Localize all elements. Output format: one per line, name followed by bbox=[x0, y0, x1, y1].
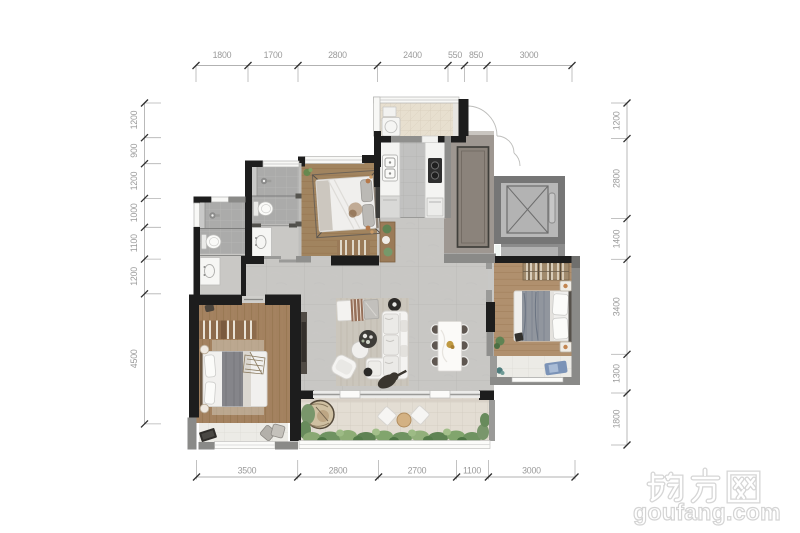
svg-text:1300: 1300 bbox=[612, 364, 622, 383]
svg-text:2800: 2800 bbox=[612, 169, 622, 188]
svg-text:1800: 1800 bbox=[213, 50, 232, 60]
svg-text:1200: 1200 bbox=[612, 111, 622, 130]
svg-text:900: 900 bbox=[129, 143, 139, 157]
svg-text:1200: 1200 bbox=[129, 171, 139, 190]
svg-text:2800: 2800 bbox=[328, 50, 347, 60]
svg-text:850: 850 bbox=[469, 50, 483, 60]
svg-text:1000: 1000 bbox=[129, 203, 139, 222]
svg-text:4500: 4500 bbox=[129, 349, 139, 368]
svg-text:3500: 3500 bbox=[238, 466, 257, 476]
svg-text:2400: 2400 bbox=[403, 50, 422, 60]
svg-text:1800: 1800 bbox=[612, 409, 622, 428]
svg-text:goufang.com: goufang.com bbox=[633, 499, 781, 525]
svg-text:3000: 3000 bbox=[522, 466, 541, 476]
svg-text:1100: 1100 bbox=[463, 466, 481, 476]
svg-text:3400: 3400 bbox=[612, 297, 622, 316]
svg-text:1200: 1200 bbox=[129, 110, 139, 129]
svg-text:550: 550 bbox=[448, 50, 462, 60]
svg-text:1700: 1700 bbox=[264, 50, 283, 60]
svg-text:3000: 3000 bbox=[520, 50, 539, 60]
svg-text:1100: 1100 bbox=[129, 234, 139, 252]
svg-text:1400: 1400 bbox=[612, 229, 622, 248]
svg-text:1200: 1200 bbox=[129, 267, 139, 286]
svg-text:2800: 2800 bbox=[329, 466, 348, 476]
svg-text:2700: 2700 bbox=[408, 466, 427, 476]
